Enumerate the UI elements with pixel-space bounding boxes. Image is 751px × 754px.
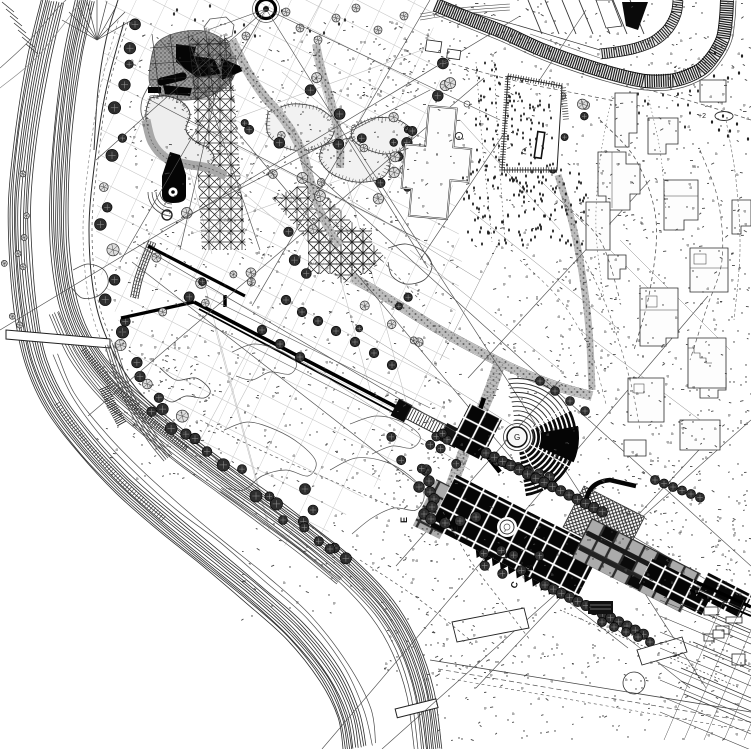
svg-text:E: E <box>450 526 460 532</box>
svg-text:D: D <box>499 552 509 559</box>
svg-text:G: G <box>514 433 520 442</box>
svg-text:+2: +2 <box>698 113 706 120</box>
svg-text:E: E <box>399 517 409 523</box>
svg-text:B: B <box>525 564 535 571</box>
